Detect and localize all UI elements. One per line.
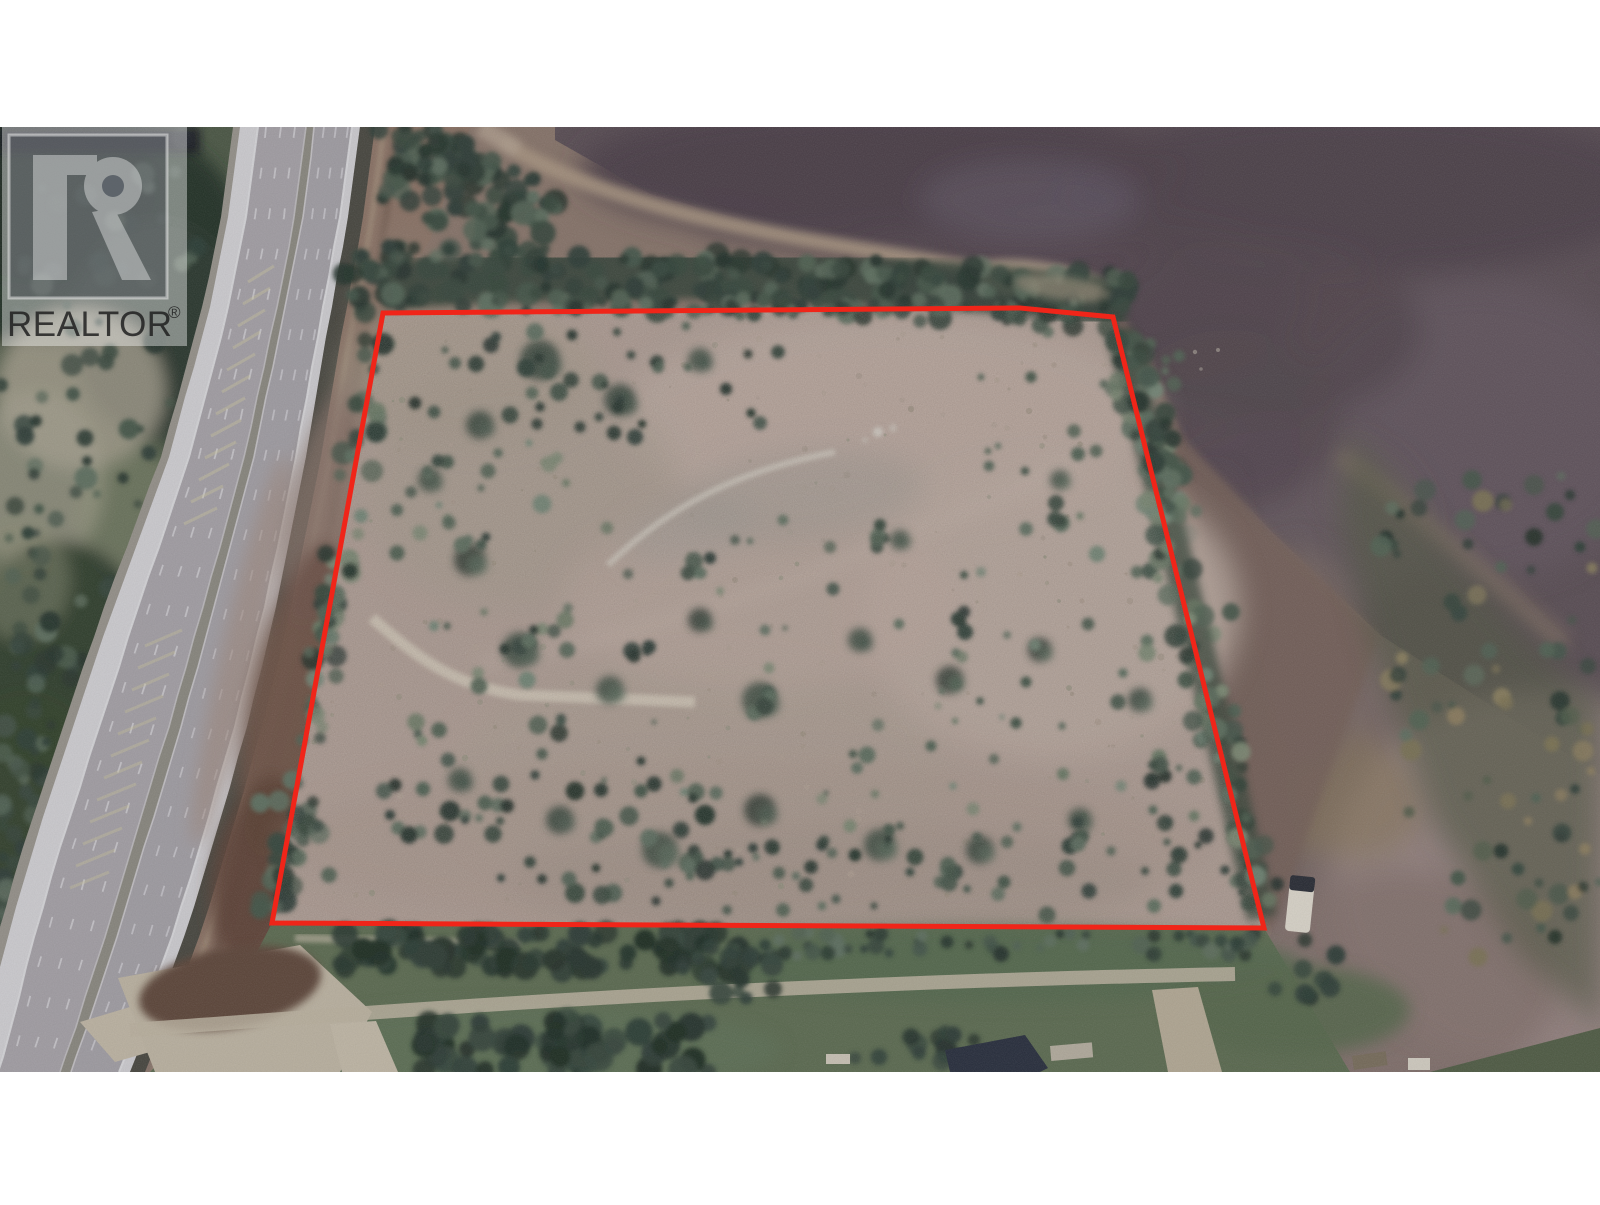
svg-text:REALTOR: REALTOR [7,305,173,344]
svg-text:®: ® [168,303,181,322]
